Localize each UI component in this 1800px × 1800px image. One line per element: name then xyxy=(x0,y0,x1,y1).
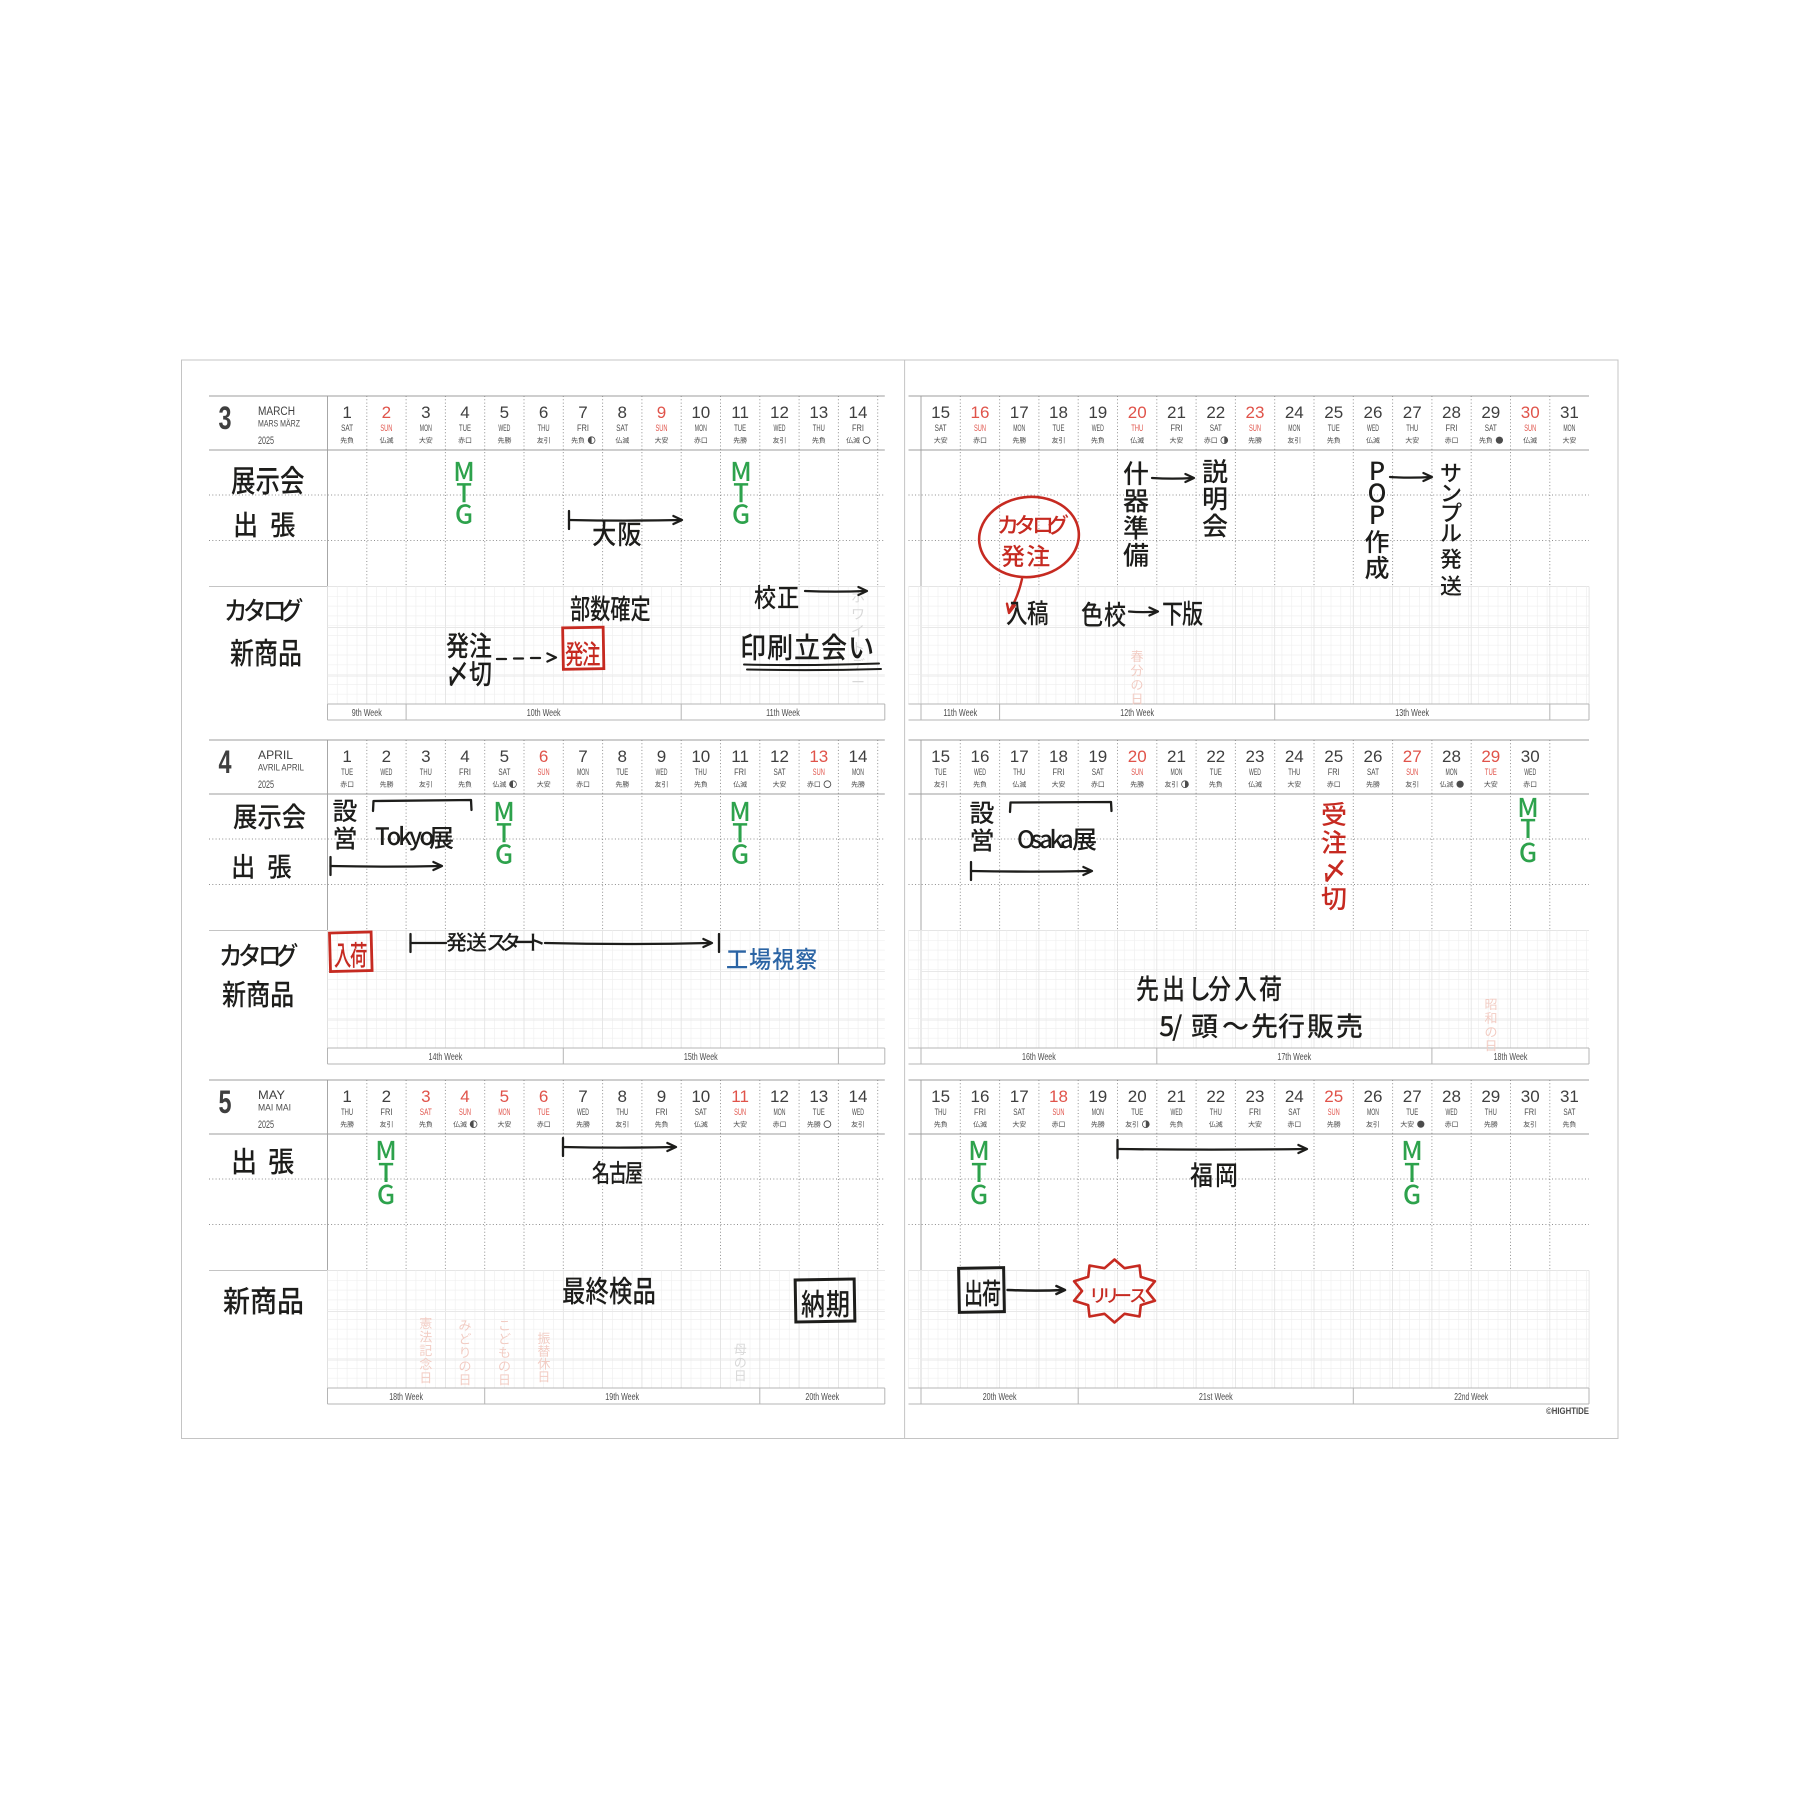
svg-text:3: 3 xyxy=(219,400,232,436)
svg-text:WED: WED xyxy=(498,423,510,433)
svg-text:FRI: FRI xyxy=(1171,423,1183,433)
svg-text:20th Week: 20th Week xyxy=(805,1392,840,1403)
svg-text:23: 23 xyxy=(1246,747,1265,766)
svg-text:14th Week: 14th Week xyxy=(429,1052,464,1063)
svg-text:24: 24 xyxy=(1285,403,1304,422)
svg-text:FRI: FRI xyxy=(734,767,746,777)
svg-text:FRI: FRI xyxy=(459,767,471,777)
svg-text:TUE: TUE xyxy=(1406,1107,1418,1117)
svg-text:10: 10 xyxy=(691,747,710,766)
svg-text:FRI: FRI xyxy=(974,1107,986,1117)
svg-text:22: 22 xyxy=(1206,747,1225,766)
svg-text:THU: THU xyxy=(1210,1107,1222,1117)
svg-text:SAT: SAT xyxy=(935,423,947,433)
svg-text:17: 17 xyxy=(1010,1087,1029,1106)
svg-text:14: 14 xyxy=(849,1087,868,1106)
svg-text:10: 10 xyxy=(691,403,710,422)
svg-text:THU: THU xyxy=(813,423,825,433)
svg-text:FRI: FRI xyxy=(852,423,864,433)
svg-text:16: 16 xyxy=(971,403,990,422)
svg-text:12: 12 xyxy=(770,747,789,766)
svg-text:29: 29 xyxy=(1481,403,1500,422)
svg-text:MON: MON xyxy=(852,767,864,777)
svg-text:SUN: SUN xyxy=(1406,767,1418,777)
svg-text:5: 5 xyxy=(219,1084,232,1120)
svg-text:6: 6 xyxy=(539,747,548,766)
svg-text:WED: WED xyxy=(852,1107,864,1117)
svg-text:WED: WED xyxy=(974,767,986,777)
svg-text:22: 22 xyxy=(1206,1087,1225,1106)
svg-text:SUN: SUN xyxy=(1053,1107,1065,1117)
svg-text:TUE: TUE xyxy=(538,1107,550,1117)
svg-text:15: 15 xyxy=(931,403,950,422)
svg-text:18th Week: 18th Week xyxy=(1494,1052,1529,1063)
svg-text:15: 15 xyxy=(931,1087,950,1106)
svg-text:SUN: SUN xyxy=(380,423,392,433)
svg-text:SAT: SAT xyxy=(1013,1107,1025,1117)
svg-text:26: 26 xyxy=(1364,403,1383,422)
svg-text:FRI: FRI xyxy=(1524,1107,1536,1117)
svg-text:4: 4 xyxy=(460,747,469,766)
svg-text:TUE: TUE xyxy=(1485,767,1497,777)
svg-text:THU: THU xyxy=(420,767,432,777)
svg-text:28: 28 xyxy=(1442,1087,1461,1106)
svg-text:MARCH: MARCH xyxy=(258,406,295,418)
svg-text:25: 25 xyxy=(1324,747,1343,766)
svg-text:FRI: FRI xyxy=(1446,423,1458,433)
svg-text:8: 8 xyxy=(617,403,626,422)
svg-text:AVRIL APRIL: AVRIL APRIL xyxy=(258,763,304,773)
svg-text:SAT: SAT xyxy=(1367,767,1379,777)
svg-text:SUN: SUN xyxy=(538,767,550,777)
svg-text:TUE: TUE xyxy=(935,767,947,777)
svg-text:4: 4 xyxy=(460,403,469,422)
svg-text:21: 21 xyxy=(1167,747,1186,766)
svg-text:SAT: SAT xyxy=(341,423,353,433)
svg-text:10th Week: 10th Week xyxy=(527,708,562,719)
svg-text:11: 11 xyxy=(731,747,749,766)
svg-text:9: 9 xyxy=(657,403,666,422)
svg-text:FRI: FRI xyxy=(577,423,589,433)
svg-text:TUE: TUE xyxy=(341,767,353,777)
svg-text:THU: THU xyxy=(1288,767,1300,777)
svg-text:21: 21 xyxy=(1167,403,1186,422)
svg-text:SAT: SAT xyxy=(1210,423,1222,433)
svg-text:FRI: FRI xyxy=(380,1107,392,1117)
svg-text:THU: THU xyxy=(695,767,707,777)
svg-text:WED: WED xyxy=(1092,423,1104,433)
svg-text:SAT: SAT xyxy=(498,767,510,777)
svg-text:25: 25 xyxy=(1324,1087,1343,1106)
svg-text:28: 28 xyxy=(1442,747,1461,766)
svg-text:SAT: SAT xyxy=(1563,1107,1575,1117)
svg-text:25: 25 xyxy=(1324,403,1343,422)
svg-text:TUE: TUE xyxy=(1328,423,1340,433)
svg-text:6: 6 xyxy=(539,403,548,422)
svg-text:12th Week: 12th Week xyxy=(1120,708,1155,719)
svg-text:3: 3 xyxy=(421,747,430,766)
svg-text:5: 5 xyxy=(500,1087,509,1106)
svg-text:14: 14 xyxy=(849,747,868,766)
svg-text:2025: 2025 xyxy=(258,435,274,447)
svg-text:SAT: SAT xyxy=(774,767,786,777)
svg-text:TUE: TUE xyxy=(459,423,471,433)
svg-text:2025: 2025 xyxy=(258,779,274,791)
svg-text:13: 13 xyxy=(809,1087,828,1106)
svg-text:THU: THU xyxy=(616,1107,628,1117)
svg-text:7: 7 xyxy=(578,747,587,766)
svg-text:17: 17 xyxy=(1010,403,1029,422)
svg-text:TUE: TUE xyxy=(1210,767,1222,777)
svg-text:SAT: SAT xyxy=(616,423,628,433)
svg-text:8: 8 xyxy=(617,747,626,766)
svg-text:THU: THU xyxy=(1485,1107,1497,1117)
svg-text:24: 24 xyxy=(1285,747,1304,766)
svg-text:MON: MON xyxy=(1288,423,1300,433)
svg-text:9: 9 xyxy=(657,747,666,766)
svg-text:27: 27 xyxy=(1403,1087,1422,1106)
svg-text:MAI MAI: MAI MAI xyxy=(258,1103,291,1113)
svg-text:1: 1 xyxy=(342,1087,351,1106)
svg-text:18: 18 xyxy=(1049,403,1068,422)
svg-text:THU: THU xyxy=(1131,423,1143,433)
svg-text:MARS MÄRZ: MARS MÄRZ xyxy=(258,419,300,429)
svg-text:WED: WED xyxy=(1249,767,1261,777)
svg-text:9: 9 xyxy=(657,1087,666,1106)
svg-text:16: 16 xyxy=(971,1087,990,1106)
svg-text:WED: WED xyxy=(577,1107,589,1117)
svg-text:SUN: SUN xyxy=(1249,423,1261,433)
svg-text:WED: WED xyxy=(1367,423,1379,433)
svg-text:TUE: TUE xyxy=(1053,423,1065,433)
svg-text:27: 27 xyxy=(1403,747,1422,766)
svg-text:WED: WED xyxy=(656,767,668,777)
svg-text:MON: MON xyxy=(1013,423,1025,433)
svg-text:21st Week: 21st Week xyxy=(1199,1392,1234,1403)
svg-text:2: 2 xyxy=(382,403,391,422)
svg-text:20: 20 xyxy=(1128,1087,1147,1106)
svg-text:SUN: SUN xyxy=(459,1107,471,1117)
svg-text:19th Week: 19th Week xyxy=(605,1392,640,1403)
svg-text:23: 23 xyxy=(1246,1087,1265,1106)
svg-text:SUN: SUN xyxy=(974,423,986,433)
svg-text:15th Week: 15th Week xyxy=(684,1052,719,1063)
svg-text:20th Week: 20th Week xyxy=(983,1392,1018,1403)
svg-text:SAT: SAT xyxy=(420,1107,432,1117)
svg-text:29: 29 xyxy=(1481,747,1500,766)
svg-text:MON: MON xyxy=(498,1107,510,1117)
svg-text:8: 8 xyxy=(617,1087,626,1106)
svg-text:12: 12 xyxy=(770,1087,789,1106)
svg-text:WED: WED xyxy=(1446,1107,1458,1117)
svg-text:23: 23 xyxy=(1246,403,1265,422)
svg-text:2: 2 xyxy=(382,747,391,766)
svg-text:26: 26 xyxy=(1364,747,1383,766)
svg-text:20: 20 xyxy=(1128,403,1147,422)
svg-text:30: 30 xyxy=(1521,403,1540,422)
svg-text:5: 5 xyxy=(500,747,509,766)
svg-text:TUE: TUE xyxy=(616,767,628,777)
svg-text:SUN: SUN xyxy=(1524,423,1536,433)
svg-text:THU: THU xyxy=(538,423,550,433)
svg-text:WED: WED xyxy=(1524,767,1536,777)
svg-text:18th Week: 18th Week xyxy=(389,1392,424,1403)
svg-text:13: 13 xyxy=(809,747,828,766)
svg-text:SAT: SAT xyxy=(1092,767,1104,777)
svg-text:2: 2 xyxy=(382,1087,391,1106)
svg-text:30: 30 xyxy=(1521,747,1540,766)
svg-text:MAY: MAY xyxy=(258,1090,285,1102)
svg-text:SUN: SUN xyxy=(656,423,668,433)
svg-text:1: 1 xyxy=(342,747,351,766)
svg-text:28: 28 xyxy=(1442,403,1461,422)
svg-text:15: 15 xyxy=(931,747,950,766)
svg-text:6: 6 xyxy=(539,1087,548,1106)
svg-text:APRIL: APRIL xyxy=(258,750,294,762)
svg-text:MON: MON xyxy=(420,423,432,433)
svg-text:SUN: SUN xyxy=(1131,767,1143,777)
svg-text:24: 24 xyxy=(1285,1087,1304,1106)
svg-text:SAT: SAT xyxy=(695,1107,707,1117)
svg-text:3: 3 xyxy=(421,403,430,422)
svg-text:19: 19 xyxy=(1088,1087,1107,1106)
svg-text:THU: THU xyxy=(935,1107,947,1117)
svg-text:©HIGHTIDE: ©HIGHTIDE xyxy=(1546,1406,1589,1416)
svg-text:29: 29 xyxy=(1481,1087,1500,1106)
svg-text:20: 20 xyxy=(1128,747,1147,766)
svg-text:26: 26 xyxy=(1364,1087,1383,1106)
svg-text:27: 27 xyxy=(1403,403,1422,422)
svg-text:11th Week: 11th Week xyxy=(943,708,978,719)
svg-text:3: 3 xyxy=(421,1087,430,1106)
svg-text:1: 1 xyxy=(342,403,351,422)
svg-text:SUN: SUN xyxy=(734,1107,746,1117)
svg-text:MON: MON xyxy=(1092,1107,1104,1117)
svg-text:SUN: SUN xyxy=(1328,1107,1340,1117)
svg-text:THU: THU xyxy=(341,1107,353,1117)
svg-text:31: 31 xyxy=(1560,403,1579,422)
svg-text:14: 14 xyxy=(849,403,868,422)
svg-text:TUE: TUE xyxy=(734,423,746,433)
svg-text:7: 7 xyxy=(578,1087,587,1106)
svg-text:2025: 2025 xyxy=(258,1119,274,1131)
svg-text:TUE: TUE xyxy=(1131,1107,1143,1117)
svg-text:FRI: FRI xyxy=(1249,1107,1261,1117)
svg-text:THU: THU xyxy=(1013,767,1025,777)
svg-text:MON: MON xyxy=(1367,1107,1379,1117)
svg-text:12: 12 xyxy=(770,403,789,422)
svg-text:MON: MON xyxy=(774,1107,786,1117)
svg-text:19: 19 xyxy=(1088,747,1107,766)
svg-text:MON: MON xyxy=(577,767,589,777)
svg-text:30: 30 xyxy=(1521,1087,1540,1106)
svg-text:18: 18 xyxy=(1049,747,1068,766)
svg-text:7: 7 xyxy=(578,403,587,422)
svg-text:4: 4 xyxy=(219,744,232,780)
svg-text:SAT: SAT xyxy=(1485,423,1497,433)
svg-text:WED: WED xyxy=(1171,1107,1183,1117)
svg-text:9th Week: 9th Week xyxy=(352,708,383,719)
svg-text:SAT: SAT xyxy=(1288,1107,1300,1117)
svg-text:13th Week: 13th Week xyxy=(1395,708,1430,719)
svg-text:11th Week: 11th Week xyxy=(766,708,801,719)
svg-text:19: 19 xyxy=(1088,403,1107,422)
svg-text:MON: MON xyxy=(1171,767,1183,777)
svg-text:11: 11 xyxy=(731,1087,749,1106)
svg-text:4: 4 xyxy=(460,1087,469,1106)
svg-text:22nd Week: 22nd Week xyxy=(1454,1392,1488,1403)
svg-text:10: 10 xyxy=(691,1087,710,1106)
svg-text:WED: WED xyxy=(774,423,786,433)
svg-text:THU: THU xyxy=(1406,423,1418,433)
svg-text:16: 16 xyxy=(971,747,990,766)
svg-text:16th Week: 16th Week xyxy=(1022,1052,1057,1063)
svg-text:21: 21 xyxy=(1167,1087,1186,1106)
svg-text:TUE: TUE xyxy=(813,1107,825,1117)
svg-text:11: 11 xyxy=(731,403,749,422)
svg-text:MON: MON xyxy=(1446,767,1458,777)
svg-text:FRI: FRI xyxy=(656,1107,668,1117)
svg-text:18: 18 xyxy=(1049,1087,1068,1106)
svg-text:WED: WED xyxy=(380,767,392,777)
svg-text:MON: MON xyxy=(695,423,707,433)
svg-text:13: 13 xyxy=(809,403,828,422)
svg-text:MON: MON xyxy=(1563,423,1575,433)
svg-text:5: 5 xyxy=(500,403,509,422)
svg-text:17: 17 xyxy=(1010,747,1029,766)
svg-text:17th Week: 17th Week xyxy=(1277,1052,1312,1063)
svg-text:31: 31 xyxy=(1560,1087,1579,1106)
svg-text:SUN: SUN xyxy=(813,767,825,777)
svg-text:FRI: FRI xyxy=(1053,767,1065,777)
svg-text:FRI: FRI xyxy=(1328,767,1340,777)
svg-text:22: 22 xyxy=(1206,403,1225,422)
